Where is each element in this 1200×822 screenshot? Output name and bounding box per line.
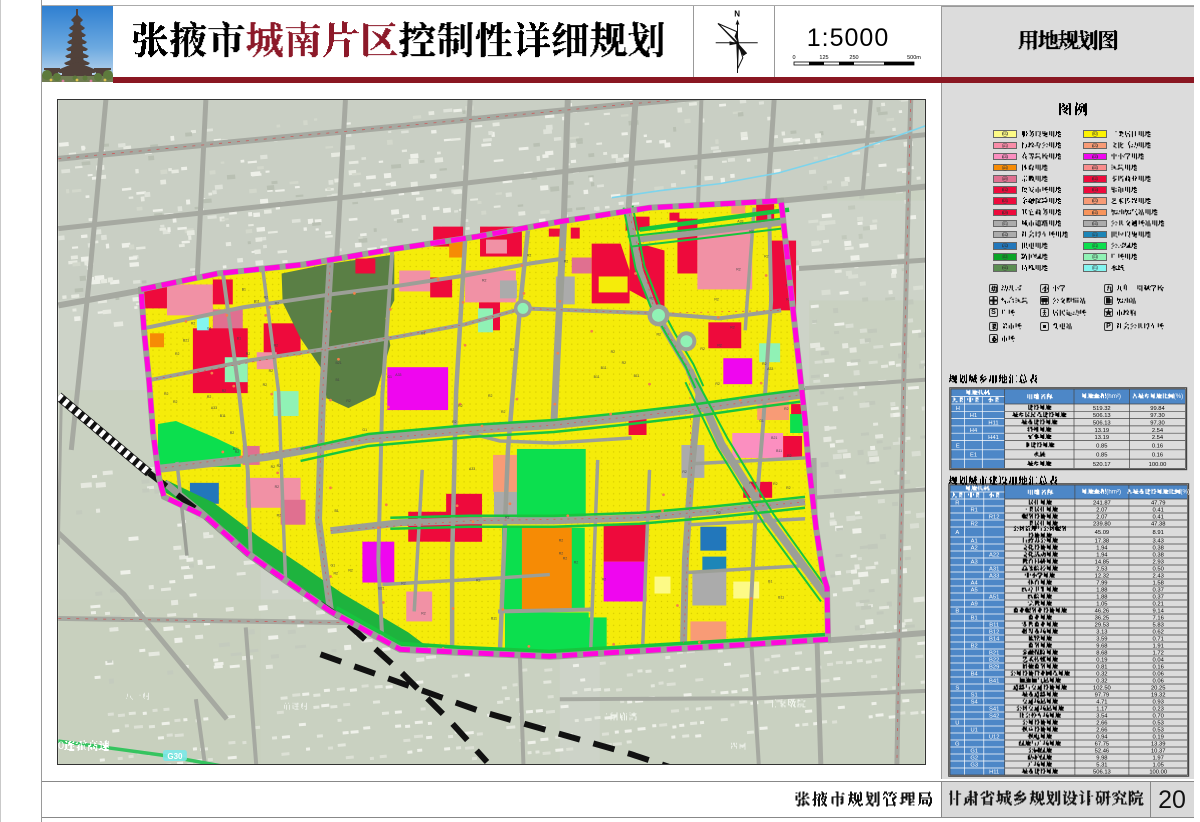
svg-text:E: E bbox=[956, 443, 960, 449]
svg-text:H1: H1 bbox=[970, 413, 977, 419]
svg-text:506.13: 506.13 bbox=[1093, 420, 1111, 426]
svg-text:506.13: 506.13 bbox=[1093, 413, 1111, 419]
svg-text:45.09: 45.09 bbox=[1095, 530, 1110, 536]
svg-text:H: H bbox=[956, 406, 960, 412]
svg-text:E1: E1 bbox=[970, 453, 977, 459]
svg-text:100.00: 100.00 bbox=[1149, 462, 1167, 468]
svg-text:0.16: 0.16 bbox=[1152, 453, 1163, 459]
svg-text:0.85: 0.85 bbox=[1096, 453, 1107, 459]
svg-text:0.85: 0.85 bbox=[1096, 443, 1107, 449]
svg-text:519.32: 519.32 bbox=[1093, 406, 1111, 412]
svg-text:99.84: 99.84 bbox=[1150, 406, 1165, 412]
svg-text:0.16: 0.16 bbox=[1152, 443, 1163, 449]
svg-text:A: A bbox=[955, 530, 959, 536]
svg-text:97.30: 97.30 bbox=[1150, 420, 1165, 426]
svg-text:97.30: 97.30 bbox=[1150, 413, 1165, 419]
svg-text:H11: H11 bbox=[988, 420, 998, 426]
svg-text:520.17: 520.17 bbox=[1093, 462, 1111, 468]
svg-text:8.91: 8.91 bbox=[1153, 530, 1164, 536]
